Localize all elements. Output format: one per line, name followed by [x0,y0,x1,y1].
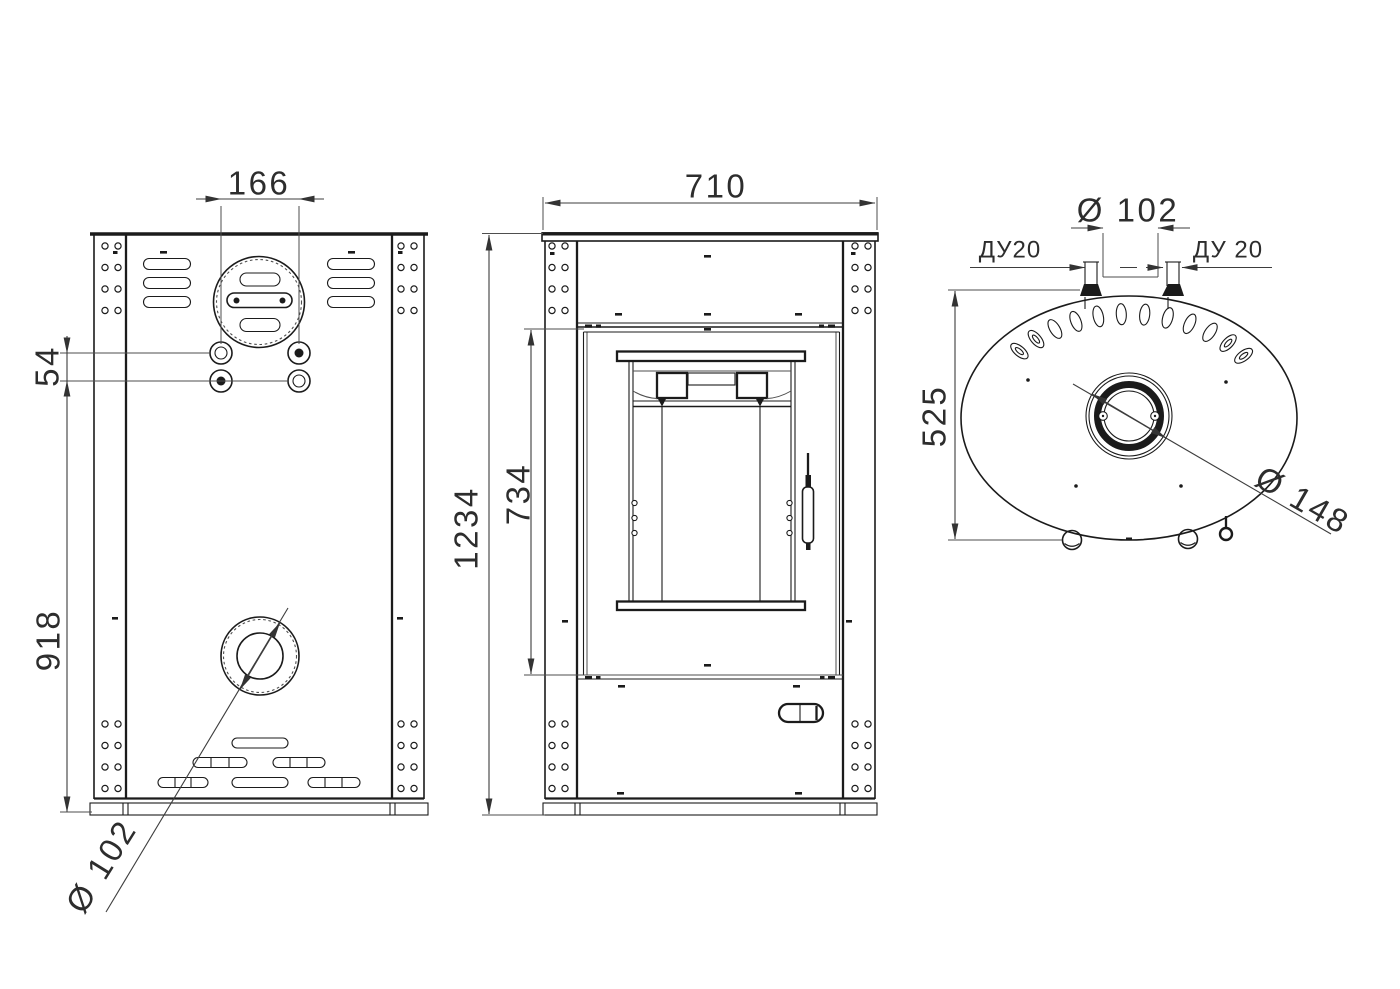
drawing-sheet: 166 54 918 Ø 102 [0,0,1400,989]
front-lower-panel [577,675,843,722]
dim-label-734: 734 [500,463,537,526]
stove-door[interactable] [584,332,840,675]
du20-right-label: ДУ 20 [1193,237,1263,264]
technical-drawing-canvas: 166 54 918 Ø 102 [0,0,1400,989]
ash-door-latch[interactable] [779,704,823,722]
dim-label-rear-flue-diameter: Ø 102 [58,813,144,919]
dim-label-top-102: Ø 102 [1077,192,1179,229]
top-plate-outline [961,296,1297,540]
dim-top-102: Ø 102 [1071,192,1190,278]
dim-710: 710 [543,168,877,231]
door-window [617,352,805,611]
rear-body [90,234,428,815]
top-view: Ø 102 ДУ20 ДУ 20 525 Ø 148 [916,192,1357,550]
dim-label-166: 166 [228,165,291,202]
dim-label-1234: 1234 [448,486,485,569]
dim-label-525: 525 [916,385,953,448]
label-du20-left: ДУ20 [970,237,1163,268]
dim-label-148: Ø 148 [1249,458,1356,541]
door-handle[interactable] [803,453,814,550]
rear-center-marks [112,251,403,620]
du20-left-label: ДУ20 [979,237,1041,264]
rear-vent-louvers-top [144,251,375,308]
dim-166: 166 [196,165,324,345]
top-vent-slots [1008,297,1255,366]
label-du20-right: ДУ 20 [1182,237,1272,268]
rear-flue-collar [214,257,305,348]
rear-water-connections [210,342,310,392]
front-upper-panel [577,323,843,328]
callout-rear-flue-diameter: Ø 102 [58,608,288,919]
rear-view: 166 54 918 Ø 102 [29,165,429,920]
dim-525: 525 [916,290,1081,540]
front-view: 710 1234 734 [448,168,879,816]
dim-734: 734 [500,329,713,675]
front-body [542,233,878,815]
rear-vent-louvers-bottom [158,738,360,788]
front-center-marks [550,252,856,795]
callout-top-148: Ø 148 [1073,384,1357,542]
dim-label-710: 710 [685,168,748,205]
dim-label-54: 54 [29,345,66,387]
dim-918: 918 [30,381,93,812]
rear-mounting-holes [102,243,417,792]
dim-label-918: 918 [30,609,67,672]
